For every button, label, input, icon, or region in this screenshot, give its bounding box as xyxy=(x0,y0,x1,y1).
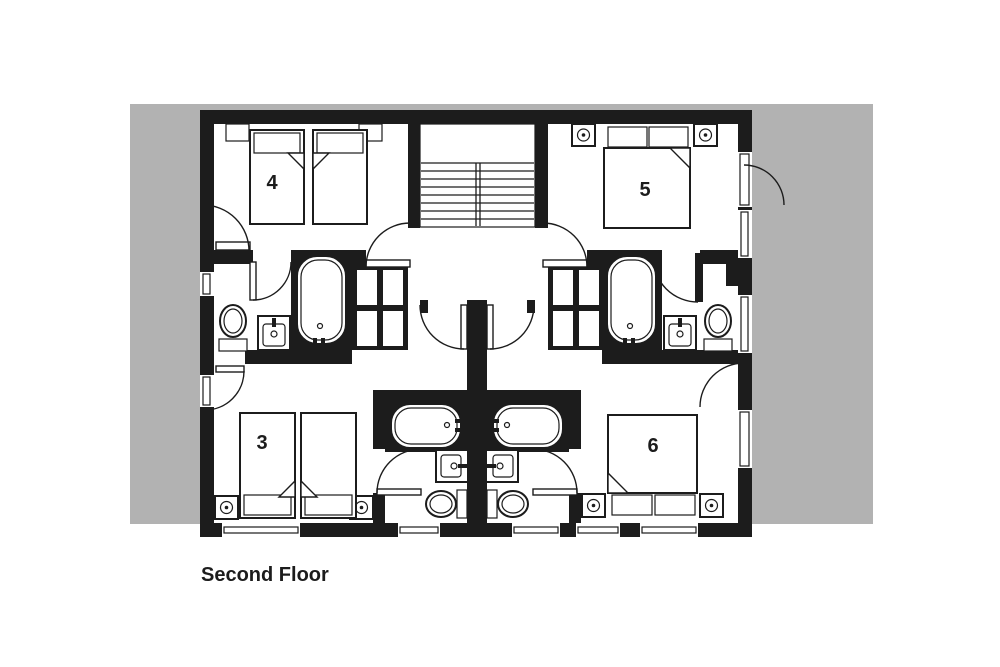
bathtub-icon xyxy=(385,398,468,452)
sink-icon xyxy=(486,450,518,482)
sink-icon xyxy=(436,450,468,482)
nightstand-icon xyxy=(226,124,249,141)
toilet-icon xyxy=(426,490,467,518)
bedside-lamp-icon xyxy=(582,494,605,517)
room-number: 4 xyxy=(266,172,278,194)
room-number: 5 xyxy=(639,179,650,201)
room-number: 3 xyxy=(256,432,267,454)
single-bed-icon xyxy=(240,413,295,518)
double-bed-icon xyxy=(604,127,690,228)
window-icon xyxy=(640,523,698,537)
bedside-lamp-icon xyxy=(215,496,238,519)
floor-title: Second Floor xyxy=(201,564,329,586)
bedside-lamp-icon xyxy=(572,124,595,146)
window-icon xyxy=(512,523,560,537)
room-4: 4 xyxy=(226,124,382,224)
window-icon xyxy=(200,375,214,407)
bathtub-icon xyxy=(602,250,662,350)
window-icon xyxy=(738,210,752,258)
window-icon xyxy=(200,272,214,296)
window-icon xyxy=(738,295,752,353)
bathtub-icon xyxy=(486,398,569,452)
toilet-icon xyxy=(487,490,528,518)
sink-icon xyxy=(664,316,696,350)
single-bed-icon xyxy=(301,413,356,518)
toilet-icon xyxy=(219,305,247,351)
bedside-lamp-icon xyxy=(694,124,717,146)
sink-icon xyxy=(258,316,290,350)
wardrobe xyxy=(548,264,604,350)
single-bed-icon xyxy=(313,130,367,224)
room-number: 6 xyxy=(647,435,658,457)
bathtub-icon xyxy=(291,250,352,350)
double-bed-icon xyxy=(608,415,697,515)
floor-plan-page: 4 5 3 xyxy=(0,0,1000,667)
floor-plan-drawing: 4 5 3 xyxy=(0,0,1000,667)
window-icon xyxy=(576,523,620,537)
bedside-lamp-icon xyxy=(700,494,723,517)
toilet-icon xyxy=(704,305,732,351)
window-icon xyxy=(398,523,440,537)
wardrobe xyxy=(352,264,408,350)
window-icon xyxy=(222,523,300,537)
